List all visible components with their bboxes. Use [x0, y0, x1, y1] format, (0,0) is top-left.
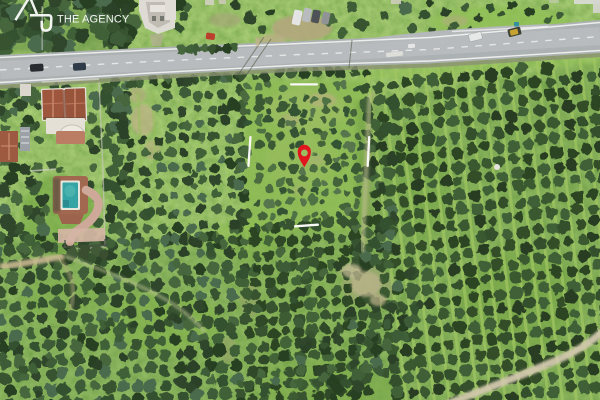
svg-text:THE AGENCY: THE AGENCY	[57, 13, 130, 25]
